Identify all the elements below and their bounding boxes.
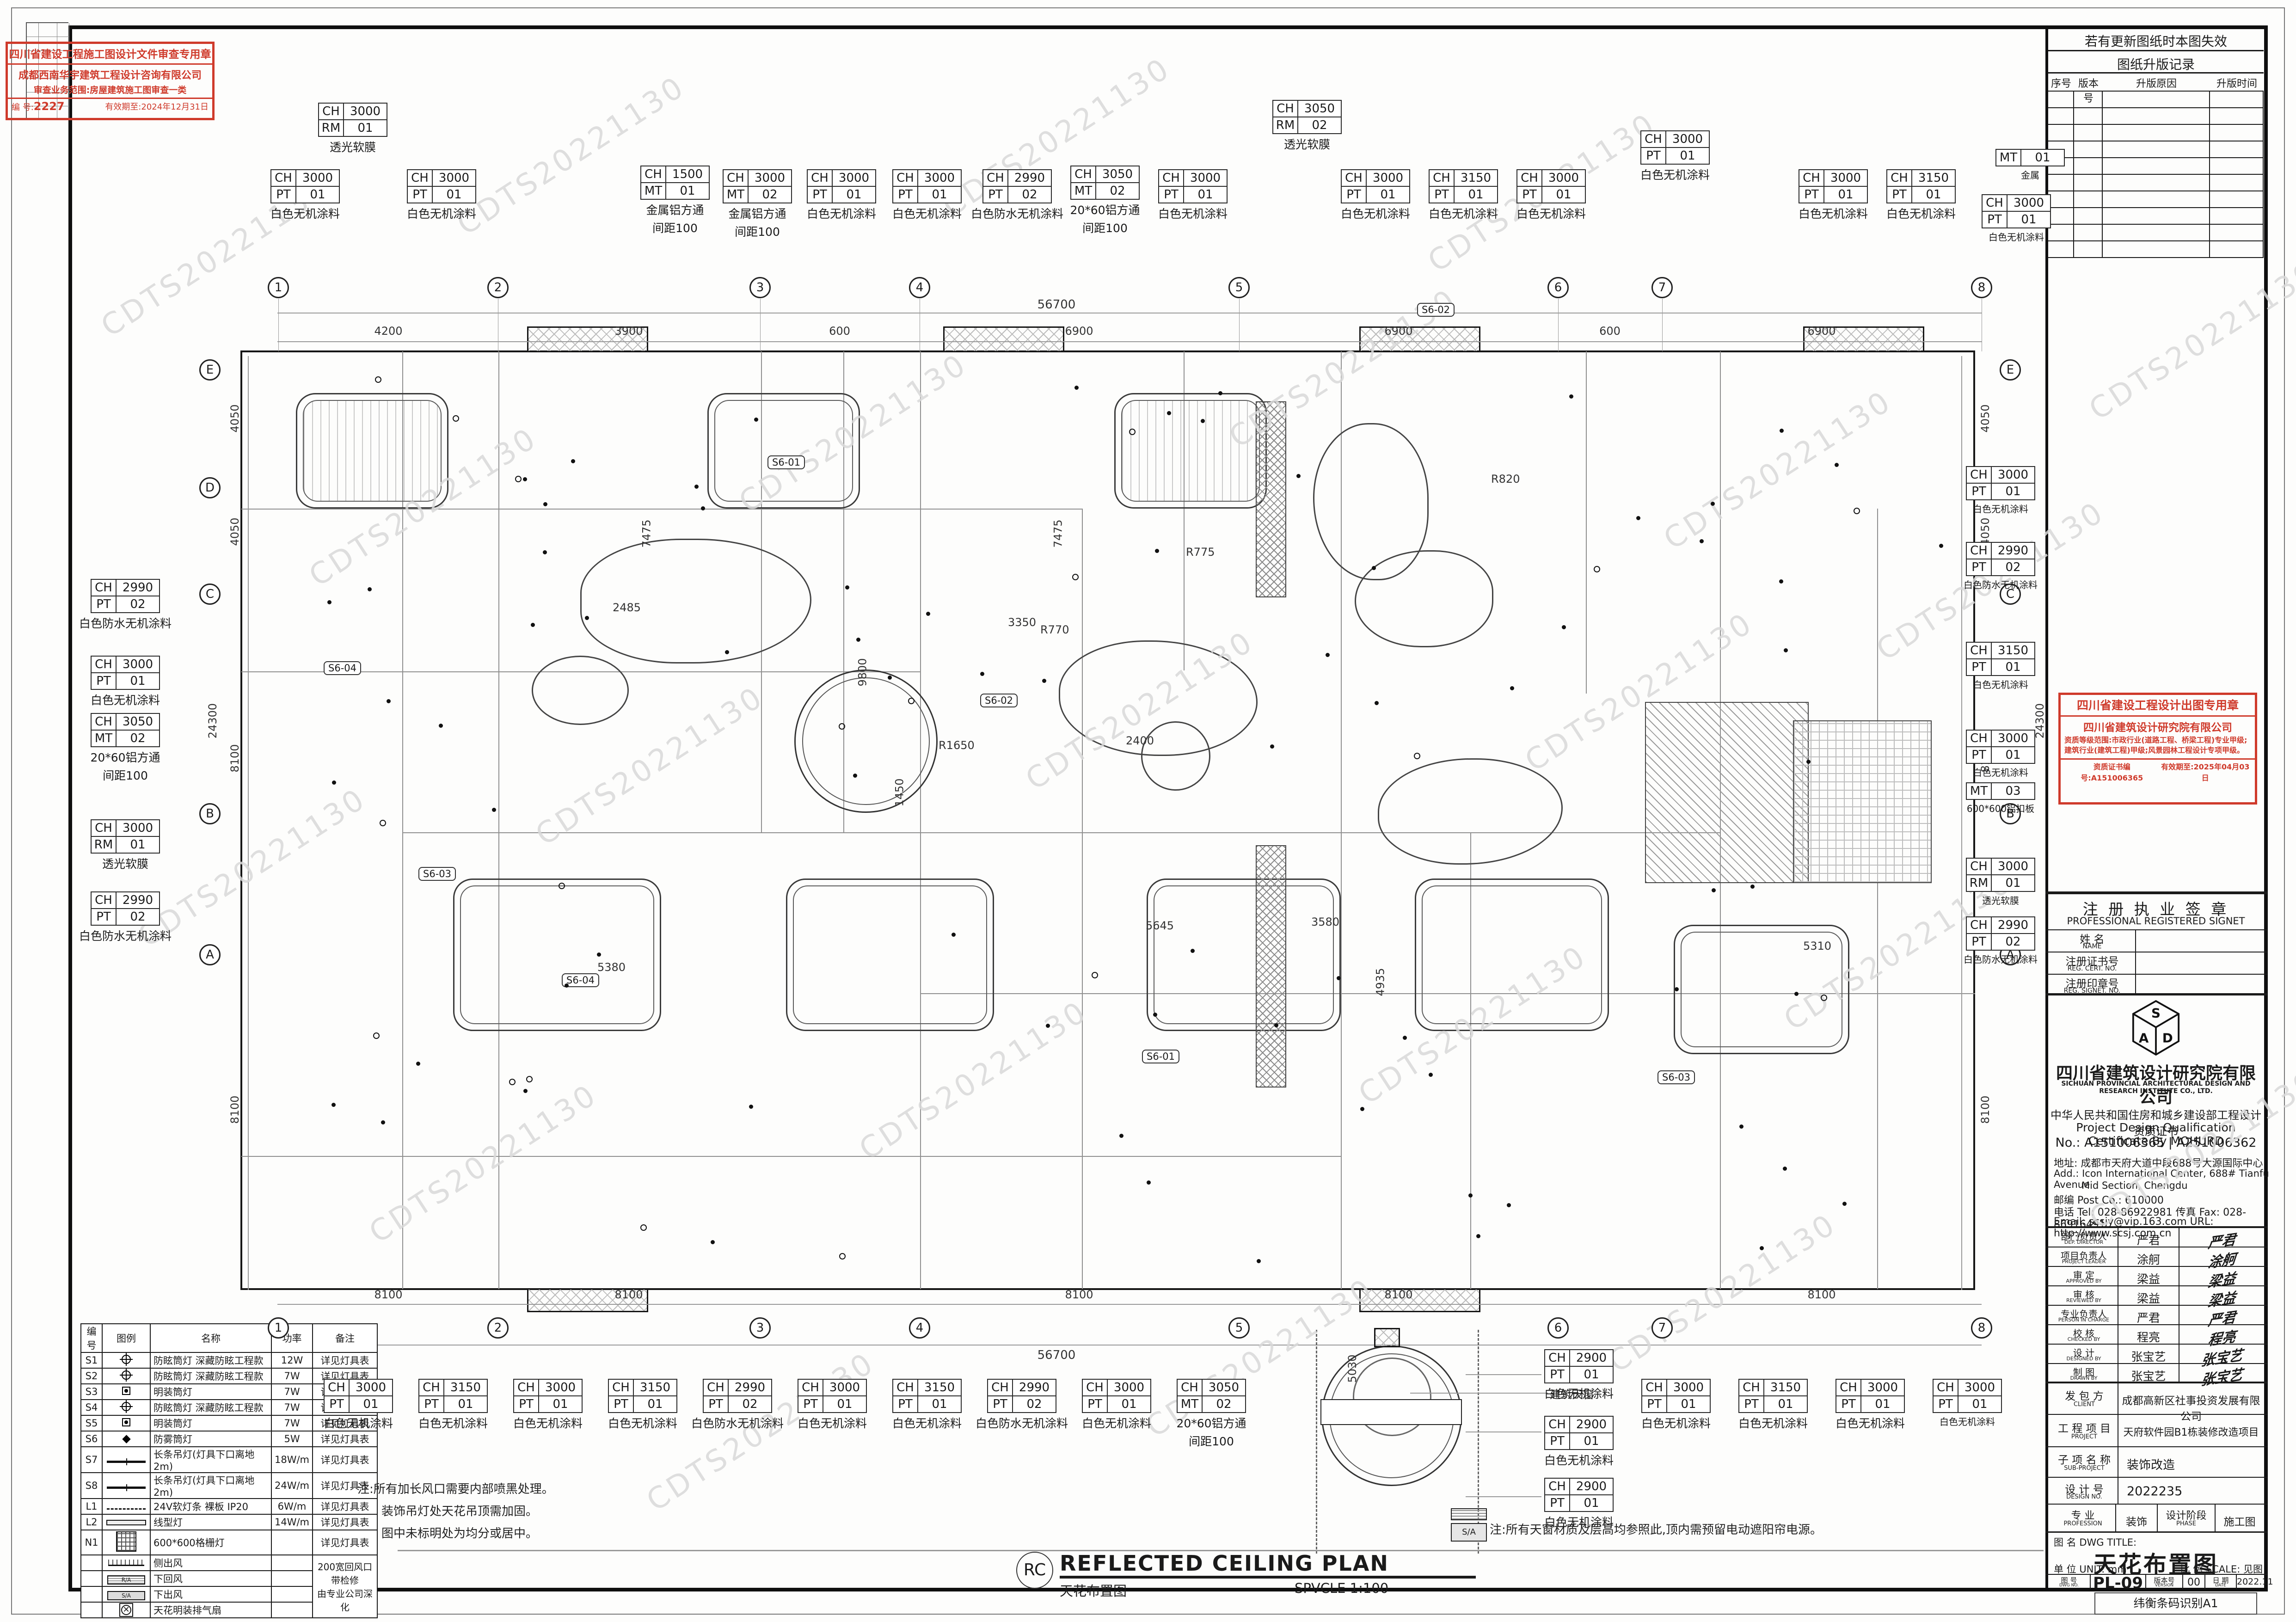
grid-bubble-row: A <box>199 944 221 965</box>
callout-code: PT <box>1739 1396 1764 1413</box>
project-label-cn: 工 程 项 目 <box>2051 1419 2118 1435</box>
rev-col-reason: 升版原因 <box>2103 75 2210 90</box>
downlight-symbol <box>1403 1036 1407 1040</box>
callout-code: CH <box>1642 1379 1667 1396</box>
callout-code: PT <box>91 909 116 925</box>
callout-code: CH <box>608 1379 633 1396</box>
legend-name: 防眩筒灯 深藏防眩工程款 <box>150 1352 271 1368</box>
downlight-symbol <box>749 1105 753 1109</box>
review-stamp-company: 成都西南华宇建筑工程设计咨询有限公司 <box>8 67 212 82</box>
callout-value: 3150 <box>633 1379 677 1396</box>
svg-text:S: S <box>2151 1005 2161 1020</box>
callout-code: CH <box>419 1379 444 1396</box>
dim-free: 5380 <box>597 961 626 974</box>
callout-code: PT <box>1966 747 1991 763</box>
downlight-symbol <box>1092 972 1098 978</box>
dim-free: 5645 <box>1146 919 1174 932</box>
callout-box: CH2900PT01 <box>1544 1416 1614 1450</box>
callout-value: 3000 <box>1861 1379 1904 1396</box>
prof-value: 装饰 <box>2116 1513 2157 1529</box>
personnel-label-en: DRAWN BY <box>2050 1375 2118 1381</box>
legend-no <box>81 1586 102 1602</box>
downlight-symbol <box>711 1240 715 1244</box>
corner-cell <box>39 23 57 37</box>
grid-stem <box>498 299 498 351</box>
downlight-symbol <box>1372 566 1376 570</box>
legend-power: 24W/m <box>271 1473 313 1499</box>
callout-value: 02 <box>116 730 160 747</box>
personnel-divider <box>2179 1228 2179 1382</box>
dim-free: 9800 <box>856 658 869 686</box>
callout-code: PT <box>703 1396 728 1413</box>
fixture-tag: S6-02 <box>1417 303 1455 317</box>
revision-cell <box>2103 191 2210 208</box>
legend-name: 侧出风 <box>150 1555 271 1571</box>
callout-caption: 20*60铝方通 <box>1151 1414 1272 1431</box>
callout-value: 3000 <box>296 170 339 186</box>
downlight-symbol <box>1842 1202 1847 1206</box>
downlight-antiglare-icon <box>122 1370 131 1380</box>
legend-name: 防雾筒灯 <box>150 1431 271 1447</box>
issue-stamp-company: 四川省建筑设计研究院有限公司 <box>2061 719 2255 734</box>
callout-value: 3000 <box>116 820 160 836</box>
project-value: 天府软件园B1栋装修改造项目 <box>2119 1424 2263 1439</box>
grid-stem <box>1558 299 1559 351</box>
callout-value: 01 <box>1991 483 2035 500</box>
dim-free: R820 <box>1491 473 1520 485</box>
callout-caption: 白色无机涂料 <box>1959 502 2042 515</box>
callout-box: CH3000PT01 <box>1158 169 1228 203</box>
corner-cell <box>57 23 69 37</box>
callout-code: PT <box>1642 1396 1667 1413</box>
callout-value: 3150 <box>1764 1379 1807 1396</box>
callout-code: PT <box>1341 186 1366 203</box>
review-stamp: 四川省建设工程施工图设计文件审查专用章 成都西南华宇建筑工程设计咨询有限公司 审… <box>6 42 215 120</box>
legend-symbol: ✕ <box>102 1602 150 1618</box>
downlight-symbol <box>888 676 892 680</box>
fixture-tag: S6-03 <box>1658 1070 1695 1084</box>
finish-callout: CH3150PT01白色无机涂料 <box>1886 169 1982 221</box>
legend-symbol: R/A <box>102 1571 150 1586</box>
callout-caption: 白色无机涂料 <box>1132 205 1253 221</box>
downlight-surface-icon <box>122 1387 130 1395</box>
revision-cell <box>2210 108 2264 125</box>
grid-bubble-col: 8 <box>1971 1317 1992 1339</box>
callout-code: PT <box>91 596 116 613</box>
callout-value: 3150 <box>1454 170 1498 186</box>
legend-symbol <box>102 1431 150 1447</box>
callout-value: 3000 <box>1667 1379 1710 1396</box>
legend-power <box>271 1530 313 1555</box>
dim-top-segment: 6900 <box>1375 325 1422 338</box>
downlight-symbol <box>1939 544 1943 548</box>
barcode-note: 纬衡条码识别A1 <box>2094 1592 2257 1615</box>
legend-note: 详见灯具表 <box>313 1447 377 1473</box>
svg-text:D: D <box>2162 1031 2173 1046</box>
callout-value: 02 <box>1991 934 2035 950</box>
downlight-symbol <box>1750 885 1755 889</box>
grid-bubble-row: D <box>199 477 221 498</box>
revision-cell <box>2048 108 2074 125</box>
dim-bottom-segment: 8100 <box>1375 1288 1422 1301</box>
callout-value: 01 <box>1861 1396 1904 1413</box>
review-stamp-validity: 有效期至:2024年12月31日 <box>105 100 209 112</box>
dim-top-segment: 6900 <box>1056 325 1102 338</box>
callout-box: CH3150PT01 <box>1738 1379 1808 1413</box>
grid-bubble-row: E <box>199 359 221 381</box>
review-stamp-title: 四川省建设工程施工图设计文件审查专用章 <box>8 44 212 65</box>
callout-value: 3150 <box>1912 170 1955 186</box>
downlight-symbol <box>853 774 857 778</box>
crosshatch-shaft <box>1256 845 1286 1087</box>
callout-code: CH <box>1966 642 1991 659</box>
signet-title-en: PROFESSIONAL REGISTERED SIGNET <box>2048 915 2264 927</box>
revision-cell <box>2210 141 2264 158</box>
legend-symbol <box>102 1555 150 1571</box>
callout-code: MT <box>641 183 666 199</box>
callout-box: CH3000RM01 <box>1966 858 2035 892</box>
legend-power: 7W <box>271 1400 313 1415</box>
downlight-symbol <box>1468 1193 1473 1198</box>
callout-caption: 透光软膜 <box>292 138 413 155</box>
revision-cell <box>2210 175 2264 191</box>
linear-pendant-icon <box>107 1487 146 1489</box>
callout-caption: 白色无机涂料 <box>1926 1414 2008 1428</box>
callout-code: PT <box>271 186 296 203</box>
callout-code: MT <box>91 730 116 747</box>
callout-code: CH <box>1177 1379 1202 1396</box>
callout-code: RM <box>319 120 344 136</box>
callout-box: CH2990PT02 <box>982 169 1052 203</box>
phase-value: 施工图 <box>2216 1513 2264 1529</box>
dim-right: 8100 <box>1979 1087 1992 1133</box>
downlight-symbol <box>526 1076 533 1082</box>
issue-stamp: 四川省建设工程设计出图专用章 四川省建筑设计研究院有限公司 资质等级范围:市政行… <box>2058 693 2257 805</box>
grid-stem <box>1662 299 1663 351</box>
downlight-symbol <box>327 600 332 604</box>
ceiling-ellipse <box>532 656 629 725</box>
callout-value: 01 <box>432 186 476 203</box>
callout-box: CH3000PT01 <box>1799 169 1868 203</box>
callout-value: 3000 <box>539 1379 582 1396</box>
legend-header: 名称 <box>150 1324 271 1352</box>
downlight-symbol <box>1794 992 1799 996</box>
finish-callout: CH3000PT01白色无机涂料 <box>1982 194 2057 243</box>
dim-bottom-segment: 8100 <box>365 1288 411 1301</box>
callout-value: 3000 <box>1366 170 1410 186</box>
revision-cell <box>2074 175 2103 191</box>
dim-free: 3580 <box>1311 915 1339 928</box>
callout-box: CH3000PT01 <box>1966 466 2035 500</box>
downlight-symbol <box>1129 429 1136 435</box>
downlight-symbol <box>725 650 729 654</box>
downlight-symbol <box>1072 574 1079 580</box>
callout-box: CH1500MT01 <box>640 166 710 200</box>
date-value: 2022.11 <box>2237 1577 2264 1587</box>
finish-callout: CH3000PT01白色无机涂料 <box>1966 730 2042 779</box>
callout-code: CH <box>703 1379 728 1396</box>
callout-box: CH2990PT02 <box>91 891 160 926</box>
callout-value: 01 <box>1824 186 1867 203</box>
callout-code: CH <box>1966 542 1991 559</box>
callout-box: CH3000PT01 <box>407 169 476 203</box>
finish-callout: CH3000MT02金属铝方通间距100 <box>723 169 818 240</box>
downlight-symbol <box>492 808 496 812</box>
finish-callout: CH3000PT01白色无机涂料 <box>1516 169 1612 221</box>
downlight-symbol <box>1042 679 1046 683</box>
legend-name: 24V软灯条 裸板 IP20 <box>150 1499 271 1514</box>
callout-box: CH3000PT01 <box>1640 130 1710 165</box>
callout-box: CH3000PT01 <box>270 169 340 203</box>
legend-symbol <box>102 1368 150 1384</box>
callout-value: 3000 <box>1991 467 2035 483</box>
invalid-note: 若有更新图纸时本图失效 <box>2048 31 2264 50</box>
callout-value: 01 <box>918 1396 961 1413</box>
callout-box: CH3150PT01 <box>1966 642 2035 676</box>
callout-caption: 白色无机涂料 <box>1518 1513 1639 1530</box>
dim-bottom-total: 56700 <box>1010 1348 1103 1362</box>
client-label-cn: 发 包 方 <box>2051 1387 2118 1403</box>
revision-cell <box>2103 225 2210 241</box>
callout-code: PT <box>407 186 432 203</box>
callout-value: 02 <box>1096 183 1139 199</box>
downlight-symbol <box>1562 625 1566 629</box>
legend-power <box>271 1602 313 1618</box>
downlight-symbol <box>585 616 589 620</box>
downlight-symbol <box>1760 1246 1764 1250</box>
callout-value: 01 <box>823 1396 866 1413</box>
downlight-symbol <box>1712 888 1716 892</box>
callout-code: PT <box>1933 1396 1958 1413</box>
revision-cell <box>2210 191 2264 208</box>
downlight-symbol <box>1270 744 1274 749</box>
signet-divider <box>2135 929 2136 993</box>
legend-header: 图例 <box>102 1324 150 1352</box>
organic-ceiling-shape <box>1355 550 1493 647</box>
grid-bubble-col: 1 <box>268 277 289 298</box>
dim-left: 4050 <box>228 509 241 555</box>
revision-cell <box>2103 175 2210 191</box>
callout-code: MT <box>1177 1396 1202 1413</box>
callout-code: MT <box>1071 183 1096 199</box>
finish-callout: CH2990PT02白色防水无机涂料 <box>91 891 186 944</box>
subproject-label-cn: 子 项 名 称 <box>2051 1451 2118 1467</box>
callout-code: PT <box>1517 186 1542 203</box>
callout-caption: 透光软膜 <box>1246 135 1368 152</box>
downlight-symbol <box>1375 701 1379 705</box>
callout-code: CH <box>91 820 116 836</box>
revision-cell <box>2103 241 2210 258</box>
finish-callout: MT03600*600铝扣板 <box>1966 782 2042 815</box>
return-air-icon: R/A <box>107 1575 145 1585</box>
callout-value: 02 <box>748 186 792 203</box>
callout-code: CH <box>798 1379 823 1396</box>
callout-code: PT <box>1429 186 1454 203</box>
callout-box: CH3150PT01 <box>418 1379 488 1413</box>
callout-code: CH <box>1273 100 1298 117</box>
legend-no: S5 <box>81 1415 102 1431</box>
downlight-symbol <box>1155 549 1159 553</box>
callout-value: 01 <box>1991 659 2035 676</box>
downlight-symbol <box>387 699 391 703</box>
callout-caption: 间距100 <box>1151 1432 1272 1449</box>
callout-code: CH <box>1966 858 1991 875</box>
callout-caption: 白色无机涂料 <box>1975 230 2057 243</box>
downlight-symbol <box>1700 539 1704 543</box>
callout-value: 02 <box>728 1396 772 1413</box>
grid-bubble-col: 4 <box>909 1317 930 1339</box>
legend-name: 线型灯 <box>150 1514 271 1530</box>
finish-callout: CH3000PT01白色无机涂料 <box>407 169 502 221</box>
dwgno-value: PL-09 <box>2091 1574 2145 1592</box>
personnel-label-en: APPROVED BY <box>2050 1278 2118 1284</box>
finish-callout: CH3000RM01透光软膜 <box>318 103 413 155</box>
downlight-symbol <box>1594 566 1600 572</box>
dim-top-segment: 600 <box>816 325 863 338</box>
legend-name: 长条吊灯(灯具下口离地2m) <box>150 1447 271 1473</box>
drawing-sheet: 四川省建设工程施工图设计文件审查专用章 成都西南华宇建筑工程设计咨询有限公司 审… <box>0 0 2296 1622</box>
callout-code: PT <box>1641 147 1666 164</box>
callout-value: 3150 <box>918 1379 961 1396</box>
legend-no: N1 <box>81 1530 102 1555</box>
callout-box: MT03 <box>1966 782 2035 800</box>
skylight-band <box>1320 1399 1462 1425</box>
callout-code: MT <box>723 186 748 203</box>
revision-cell <box>2103 108 2210 125</box>
downlight-symbol <box>509 1079 516 1085</box>
downlight-symbol <box>1326 653 1330 657</box>
downlight-symbol <box>856 638 860 642</box>
downlight-symbol <box>1429 1073 1433 1077</box>
callout-value: 3050 <box>1202 1379 1246 1396</box>
callout-value: 01 <box>1454 186 1498 203</box>
callout-code: PT <box>1966 659 1991 676</box>
callout-caption: 透光软膜 <box>65 855 186 872</box>
designno-label-en: DESIGN NO. <box>2051 1493 2118 1500</box>
callout-code: CH <box>1517 170 1542 186</box>
downlight-symbol <box>1257 1259 1261 1263</box>
callout-code: CH <box>271 170 296 186</box>
callout-caption: 金属 <box>1989 168 2071 181</box>
revision-cell <box>2210 158 2264 175</box>
callout-value: 01 <box>1991 747 2035 763</box>
dim-free: R770 <box>1040 623 1069 636</box>
downlight-symbol <box>1675 987 1679 991</box>
legend-power: 7W <box>271 1384 313 1400</box>
callout-code: PT <box>983 186 1008 203</box>
callout-value: 3000 <box>1542 170 1585 186</box>
callout-code: PT <box>91 673 116 689</box>
finish-callout: CH2900PT01白色无机涂料 <box>1544 1349 1639 1401</box>
callout-caption: 白色无机涂料 <box>65 691 186 708</box>
dim-left-total: 24300 <box>206 693 219 749</box>
downlight-symbol <box>1510 686 1514 690</box>
dim-bottom-segment: 8100 <box>1056 1288 1102 1301</box>
finish-callout: MT01金属 <box>1995 149 2071 181</box>
downlight-symbol <box>1147 1180 1151 1185</box>
callout-box: CH3050MT02 <box>1177 1379 1246 1413</box>
callout-value: 01 <box>1366 186 1410 203</box>
legend-no: S1 <box>81 1352 102 1368</box>
revision-table <box>2048 91 2264 258</box>
callout-value: 01 <box>349 1396 393 1413</box>
callout-box: CH3000PT01 <box>513 1379 583 1413</box>
titleblock-divider <box>2045 29 2048 1588</box>
callout-box: CH3000PT01 <box>1516 169 1586 203</box>
callout-box: CH3000PT01 <box>798 1379 867 1413</box>
downlight-symbol <box>1806 760 1811 764</box>
callout-value: 2900 <box>1570 1350 1613 1366</box>
date-label-en: DATE <box>2205 1583 2236 1588</box>
client-value: 成都高新区社事投资发展有限公司 <box>2119 1392 2263 1423</box>
callout-value: 01 <box>1542 186 1585 203</box>
callout-code: CH <box>91 579 116 596</box>
downlight-symbol <box>515 476 522 482</box>
legend-symbol <box>102 1530 150 1555</box>
revision-cell <box>2103 208 2210 225</box>
grid-bubble-col: 7 <box>1651 1317 1673 1339</box>
revision-cell <box>2103 158 2210 175</box>
rev-col-time: 升版时间 <box>2210 75 2264 90</box>
finish-callout: CH3000PT01白色无机涂料 <box>91 656 186 708</box>
legend-no: S2 <box>81 1368 102 1384</box>
callout-value: 2990 <box>728 1379 772 1396</box>
grid-bubble-col: 3 <box>749 1317 771 1339</box>
finish-callout: CH3050MT0220*60铝方通间距100 <box>1177 1379 1272 1449</box>
callout-code: PT <box>1545 1433 1570 1450</box>
legend-name: 明装筒灯 <box>150 1384 271 1400</box>
dim-free: 3350 <box>1008 616 1036 629</box>
grid-bubble-col: 6 <box>1547 277 1569 298</box>
finish-callout: CH3000RM01透光软膜 <box>91 819 186 872</box>
callout-box: CH3000PT01 <box>892 169 962 203</box>
callout-value: 01 <box>2007 211 2050 228</box>
revision-cell <box>2048 241 2074 258</box>
revision-cell <box>2210 92 2264 108</box>
dim-free: 2400 <box>1126 734 1154 747</box>
supply-air-label: S/A <box>1451 1523 1487 1542</box>
review-stamp-scope: 审查业务范围:房屋建筑施工图审查一类 <box>8 83 212 96</box>
downlight-antiglare-icon <box>122 1402 131 1411</box>
callout-value: 2900 <box>1570 1416 1613 1433</box>
callout-value: 3050 <box>1298 100 1341 117</box>
dim-left: 4050 <box>228 395 241 442</box>
downlight-symbol <box>1476 1234 1480 1238</box>
legend-name: 防眩筒灯 深藏防眩工程款 <box>150 1368 271 1384</box>
note-left-3: 图中未标明处为均分或居中。 <box>381 1524 538 1541</box>
callout-caption: 白色无机涂料 <box>1860 205 1982 221</box>
callout-caption: 白色无机涂料 <box>1959 677 2042 691</box>
callout-code: CH <box>1933 1379 1958 1396</box>
signet-label-en: REG. CERT. NO. <box>2053 965 2131 972</box>
personnel-label-en: REVIEWED BY <box>2050 1297 2118 1303</box>
callout-value: 3050 <box>116 713 160 730</box>
legend-no <box>81 1555 102 1571</box>
callout-value: 3000 <box>2007 195 2050 211</box>
callout-value: 01 <box>116 836 160 853</box>
revision-cell <box>2210 241 2264 258</box>
callout-box: CH3150PT01 <box>608 1379 677 1413</box>
callout-box: CH3000PT01 <box>1933 1379 2002 1413</box>
grid-bubble-col: 2 <box>487 1317 509 1339</box>
callout-value: 01 <box>2021 149 2064 166</box>
legend-power <box>271 1555 313 1571</box>
callout-value: 01 <box>1570 1366 1613 1383</box>
downlight-fogproof-icon <box>122 1435 130 1443</box>
finish-callout: CH2990PT02白色防水无机涂料 <box>1966 542 2042 591</box>
grille-light-icon <box>116 1531 136 1552</box>
callout-code: CH <box>1429 170 1454 186</box>
